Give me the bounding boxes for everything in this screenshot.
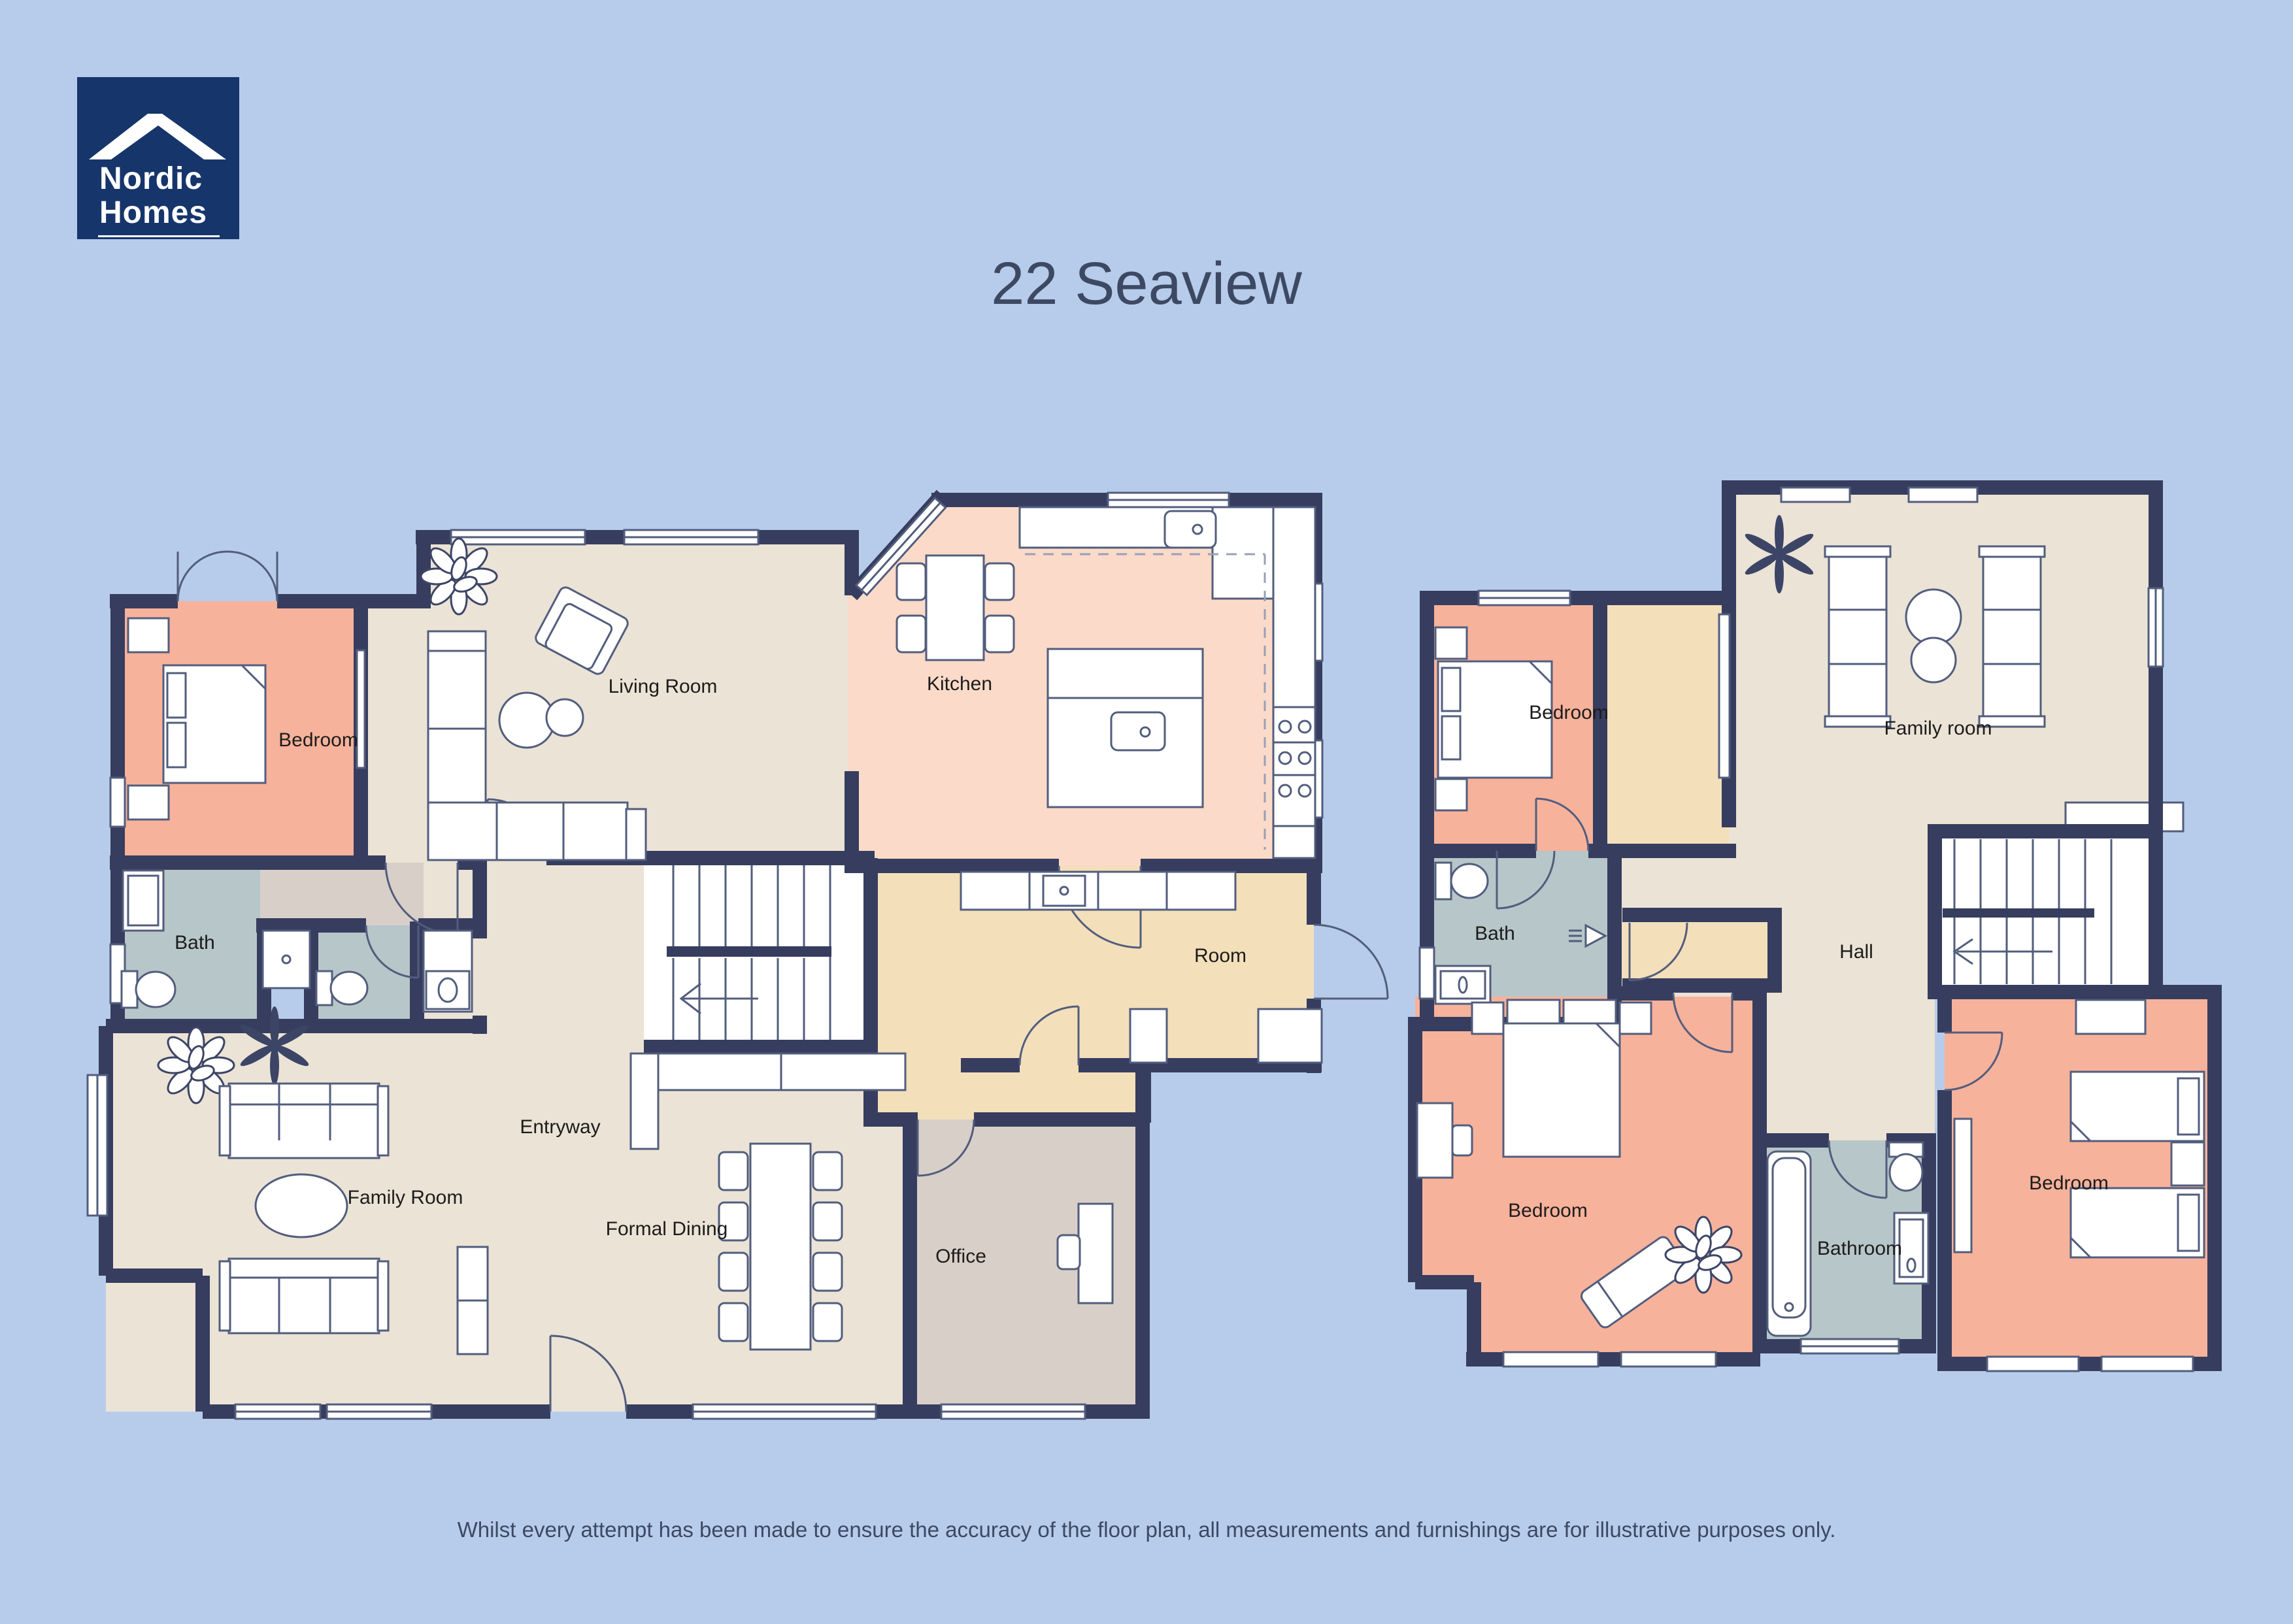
room-label-living-room: Living Room (609, 676, 718, 697)
room-label-formal-dining: Formal Dining (606, 1218, 728, 1240)
floorplan-page: Nordic Homes 22 Seaview (0, 0, 2293, 1621)
sofa (1979, 546, 2045, 727)
room-label-bedroom3: Bedroom (2029, 1172, 2109, 1194)
nordic-homes-logo: Nordic Homes (77, 77, 239, 239)
stair-rail (1943, 908, 2094, 918)
first-floor-plan: Bedroom Family room Bath Hall Bedroom Ba… (1415, 480, 2222, 1371)
sofa (220, 1259, 388, 1333)
logo-line-2: Homes (99, 197, 207, 229)
bed-single (2071, 1188, 2204, 1257)
ground-floor-plan: Bedroom Living Room Kitchen Bath Family … (88, 493, 1388, 1419)
bedroom-corridor-floor (361, 601, 433, 863)
kitchen-island (1048, 649, 1203, 807)
cabinet (631, 1053, 658, 1149)
door-arc-exterior (1314, 925, 1388, 999)
room-label-bedroom2: Bedroom (1508, 1200, 1588, 1221)
room-label-hall: Hall (1839, 941, 1873, 963)
room-label-bath: Bath (1475, 923, 1515, 944)
room-label-family-room: Family Room (348, 1187, 463, 1208)
room-label-kitchen: Kitchen (927, 673, 992, 695)
disclaimer-text: Whilst every attempt has been made to en… (0, 1517, 2293, 1542)
hall-closet-floor (1622, 923, 1767, 983)
roof-icon (85, 91, 231, 163)
logo-line-1: Nordic (99, 163, 203, 195)
room-label-bathroom: Bathroom (1817, 1238, 1902, 1259)
oval-table (256, 1174, 347, 1237)
room-label-bedroom1: Bedroom (1529, 702, 1609, 723)
room-label-bedroom: Bedroom (278, 729, 358, 751)
room-label-entryway: Entryway (520, 1116, 600, 1138)
floorplans-canvas: Bedroom Living Room Kitchen Bath Family … (0, 0, 2293, 1621)
room-label-bath: Bath (175, 932, 215, 953)
ground-staircase (644, 858, 871, 1050)
room-label-room: Room (1194, 945, 1247, 967)
sofa (1825, 546, 1890, 727)
round-table (1906, 589, 1961, 644)
french-door-left (178, 552, 227, 601)
plant-icon (1665, 1217, 1741, 1293)
plant-icon (421, 539, 497, 614)
room-label-familyroom: Family room (1884, 718, 1992, 739)
closet-panel (1954, 1119, 1971, 1252)
stair-rail (667, 946, 831, 957)
bed-single (2071, 1072, 2204, 1141)
sofa (220, 1084, 388, 1158)
page-title: 22 Seaview (0, 250, 2293, 318)
logo-underline (98, 235, 220, 237)
dresser (2076, 1000, 2145, 1034)
french-door-right (227, 552, 277, 601)
nightstand (2171, 1142, 2204, 1185)
round-table (1911, 638, 1956, 682)
vestibule-floor (961, 1065, 1144, 1119)
closet-floor (1600, 598, 1729, 853)
room-label-office: Office (935, 1246, 986, 1267)
sliding-door (1719, 614, 1730, 778)
side-table-round (546, 699, 583, 736)
